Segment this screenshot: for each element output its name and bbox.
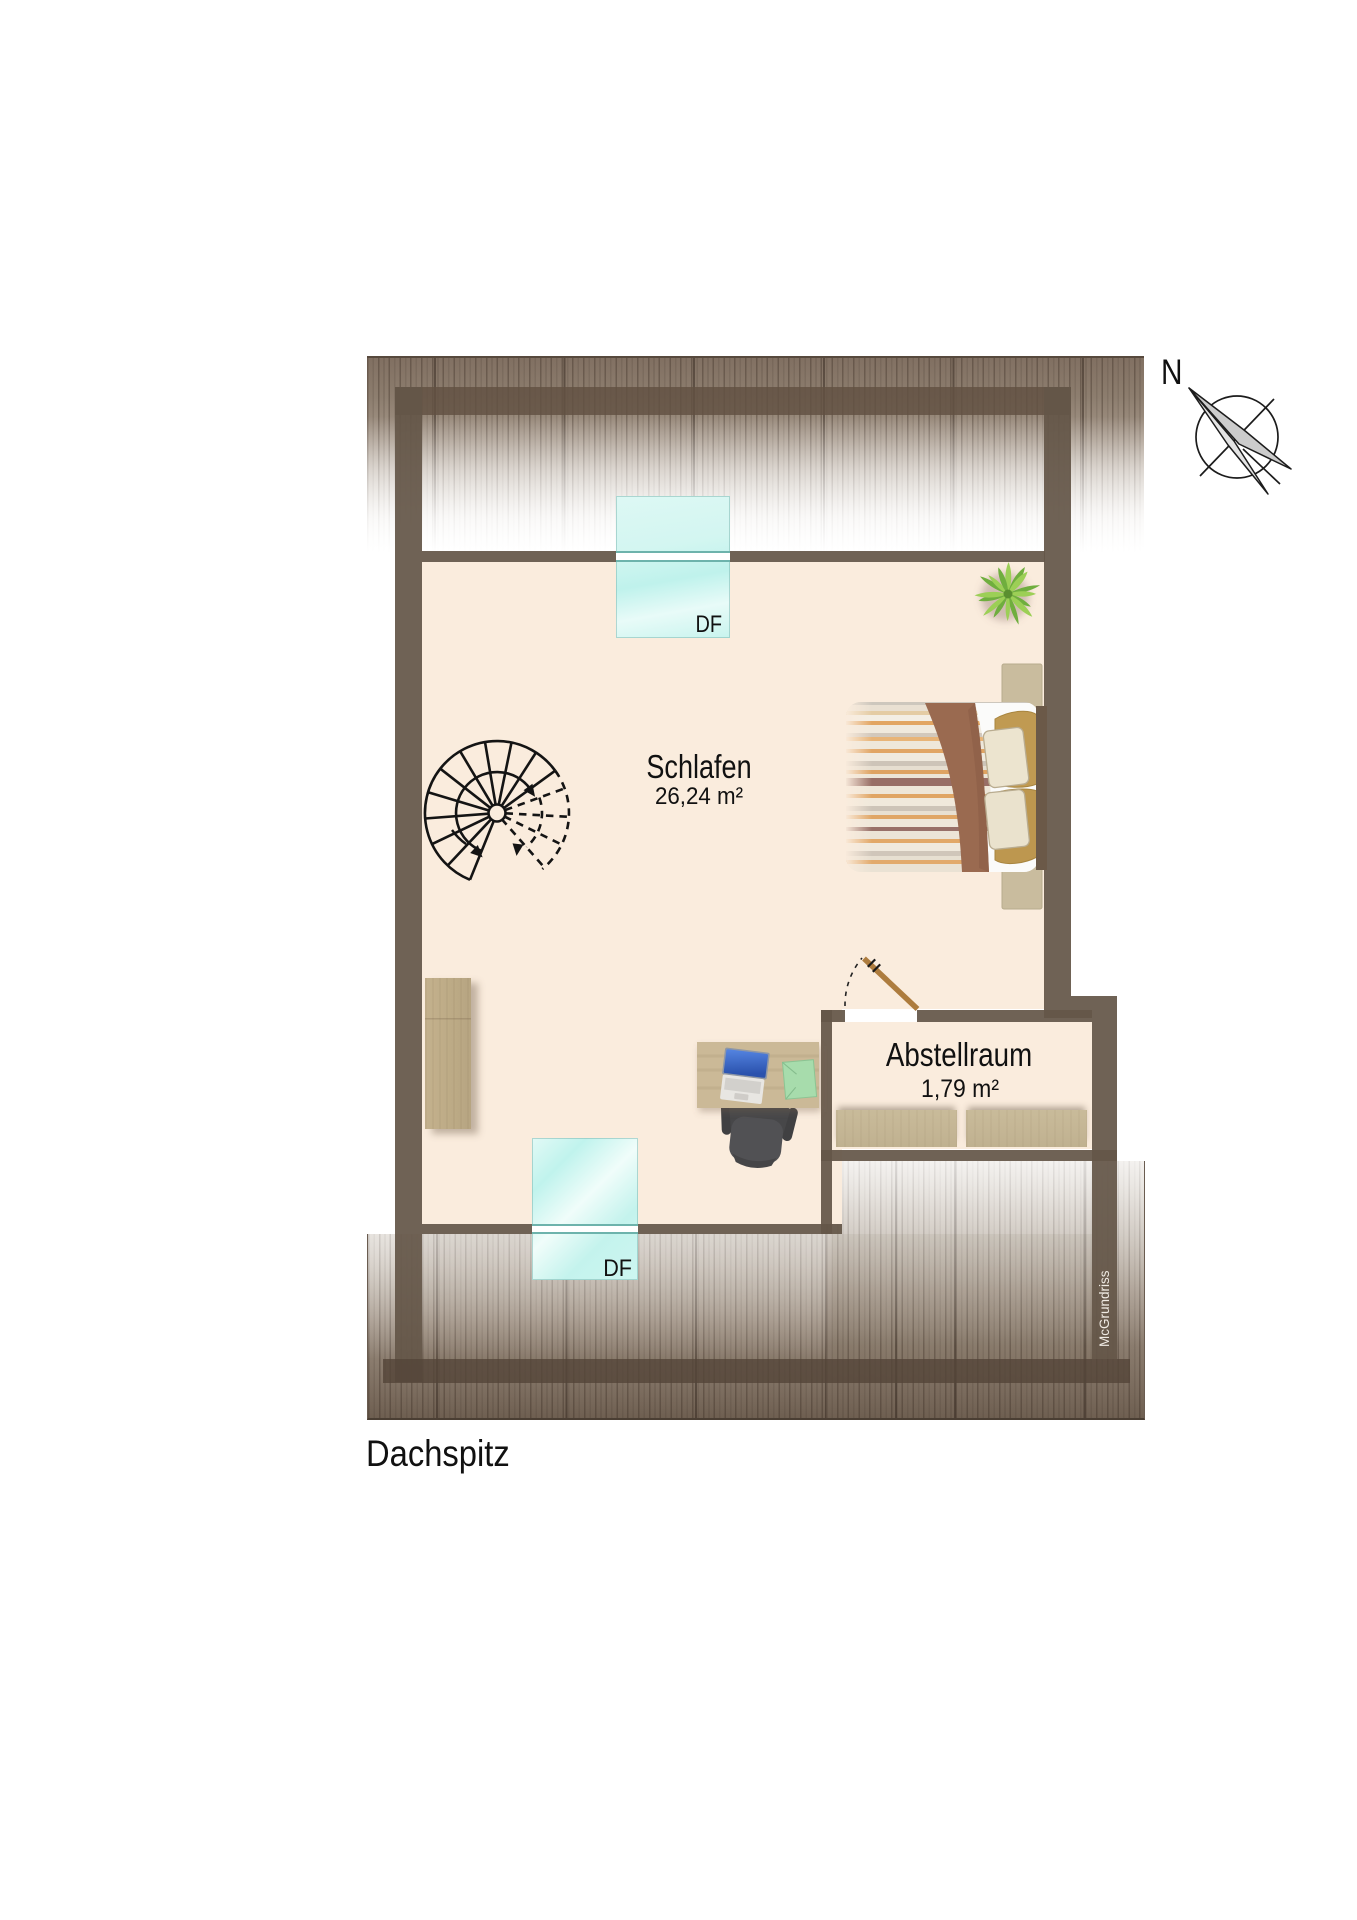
svg-text:McGrundriss: McGrundriss xyxy=(1097,1270,1112,1347)
svg-text:Abstellraum: Abstellraum xyxy=(886,1037,1032,1074)
svg-text:DF: DF xyxy=(603,1254,632,1281)
svg-text:26,24 m²: 26,24 m² xyxy=(655,782,743,809)
svg-text:1,79 m²: 1,79 m² xyxy=(921,1075,999,1103)
svg-text:DF: DF xyxy=(695,610,722,637)
svg-text:N: N xyxy=(1161,353,1182,392)
svg-text:Dachspitz: Dachspitz xyxy=(366,1433,510,1474)
svg-text:Schlafen: Schlafen xyxy=(646,750,751,786)
